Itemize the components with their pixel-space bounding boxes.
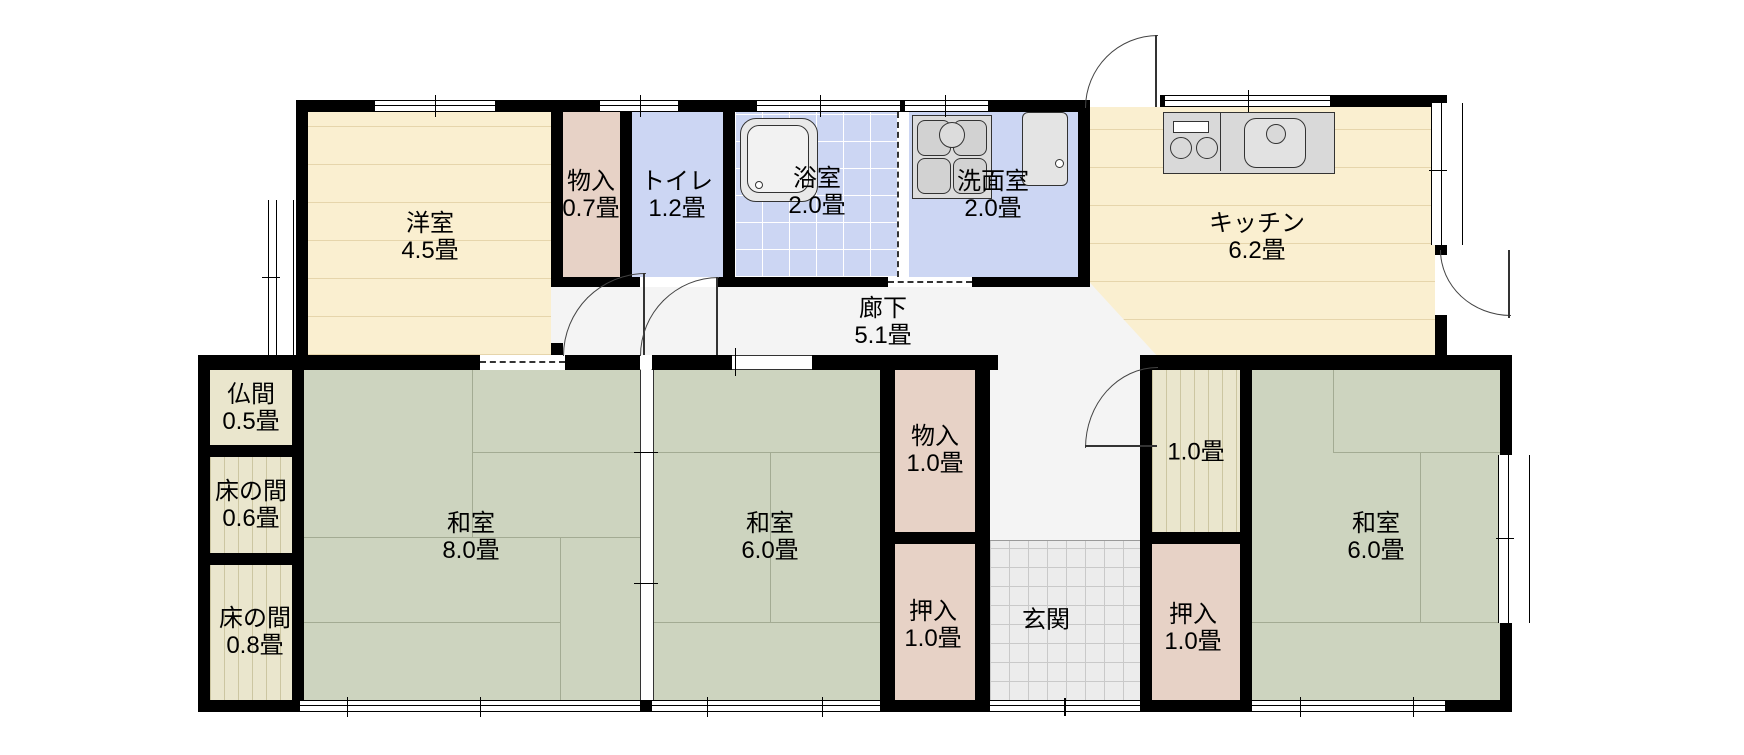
window-tick <box>707 697 708 717</box>
label-youshitsu: 洋室4.5畳 <box>401 210 458 264</box>
label-corridor: 廊下5.1畳 <box>854 295 911 349</box>
wall <box>198 355 640 370</box>
label-senmen: 洗面室2.0畳 <box>957 168 1029 222</box>
burner-icon <box>1170 137 1192 159</box>
label-ichijou: 1.0畳 <box>1167 439 1224 466</box>
door-jamb <box>551 343 563 355</box>
wall <box>296 100 308 355</box>
window-tick <box>1413 697 1414 717</box>
window-tick <box>480 697 481 717</box>
door-arc-kitchen-back <box>1440 250 1511 316</box>
label-butsuma: 仏間0.5畳 <box>222 381 279 435</box>
door-leaf <box>716 277 718 355</box>
window-tick <box>262 277 280 278</box>
fusuma-line <box>480 361 565 363</box>
entrance-door-tick <box>1064 698 1066 716</box>
wall <box>1445 700 1512 712</box>
wall <box>880 370 895 700</box>
sliding-opening-corridor-washitsu <box>732 355 812 370</box>
window <box>757 100 900 112</box>
window-tick <box>945 95 946 117</box>
label-monoire-07: 物入0.7畳 <box>562 168 619 222</box>
wall <box>292 370 304 700</box>
wall <box>975 370 990 712</box>
sliding-door-senmen-line <box>888 281 972 283</box>
tatami-line <box>652 622 880 623</box>
wall <box>1152 532 1240 544</box>
window-tick <box>1248 90 1249 112</box>
wall <box>210 553 292 565</box>
grill-icon <box>1173 121 1209 133</box>
tatami-line <box>560 537 561 700</box>
wall <box>1140 700 1252 712</box>
window <box>905 100 988 112</box>
washer-drain <box>939 122 965 148</box>
door-leaf <box>1085 445 1157 447</box>
wall <box>1500 370 1512 455</box>
label-toilet: トイレ1.2畳 <box>641 168 713 222</box>
bay-window-right <box>1498 455 1530 623</box>
window-tick <box>435 95 436 117</box>
tatami-line <box>652 452 880 453</box>
label-washitsu-6-right: 和室6.0畳 <box>1347 510 1404 564</box>
door-leaf <box>1155 35 1157 107</box>
sliding-door-bath <box>897 112 899 277</box>
fusuma-partition <box>640 370 654 700</box>
wall <box>620 100 632 277</box>
wall <box>640 700 652 712</box>
floor-plan: 洋室4.5畳 物入0.7畳 トイレ1.2畳 浴室2.0畳 洗面室2.0畳 キッチ… <box>0 0 1744 755</box>
window <box>652 700 880 712</box>
burner-icon <box>1196 137 1218 159</box>
window-tick <box>640 95 641 117</box>
window-tick <box>347 697 348 717</box>
wall <box>198 355 210 712</box>
tatami-line <box>1420 452 1421 622</box>
label-tokonoma-08: 床の間0.8畳 <box>219 605 291 659</box>
tatami-line <box>304 622 560 623</box>
wall <box>1140 355 1512 370</box>
wall <box>210 445 292 457</box>
wall <box>895 532 975 544</box>
label-genkan: 玄関 <box>1022 607 1070 634</box>
faucet-icon <box>1266 124 1286 144</box>
door-leaf <box>1508 250 1510 318</box>
label-washitsu-8: 和室8.0畳 <box>442 510 499 564</box>
label-oshiire-right: 押入1.0畳 <box>1164 601 1221 655</box>
vanity-knob <box>1055 159 1064 168</box>
tatami-line <box>472 452 640 453</box>
wall <box>812 355 998 370</box>
window-tick <box>820 95 821 117</box>
washer-pad <box>917 158 951 194</box>
label-bath: 浴室2.0畳 <box>788 165 845 219</box>
wall <box>198 700 300 712</box>
kitchen-counter <box>1163 112 1335 174</box>
wall <box>1078 100 1090 287</box>
partition-tick <box>634 452 658 453</box>
wall <box>1240 370 1252 712</box>
tatami-line <box>1333 370 1334 452</box>
window-kitchen-right <box>1431 103 1463 245</box>
label-tokonoma-06: 床の間0.6畳 <box>215 478 287 532</box>
window-tick <box>1496 538 1514 539</box>
window-tick <box>822 697 823 717</box>
label-washitsu-6-middle: 和室6.0畳 <box>741 510 798 564</box>
label-oshiire-left: 押入1.0畳 <box>904 598 961 652</box>
wall <box>723 100 735 277</box>
window-tick <box>1300 697 1301 717</box>
label-kitchen: キッチン6.2畳 <box>1209 210 1305 264</box>
wall <box>1500 623 1512 712</box>
wall <box>652 355 732 370</box>
label-monoire-10: 物入1.0畳 <box>906 423 963 477</box>
opening-tick <box>735 348 736 376</box>
tatami-line <box>1333 452 1500 453</box>
tatami-line <box>1252 622 1500 623</box>
window-tick <box>1429 170 1447 171</box>
window <box>1252 700 1445 712</box>
wall <box>880 700 990 712</box>
door-arc-kitchen-top <box>1085 35 1158 108</box>
bathtub-drain <box>755 181 763 189</box>
partition-tick <box>634 583 658 584</box>
wall <box>551 100 563 277</box>
window <box>600 100 678 112</box>
window <box>300 700 640 712</box>
